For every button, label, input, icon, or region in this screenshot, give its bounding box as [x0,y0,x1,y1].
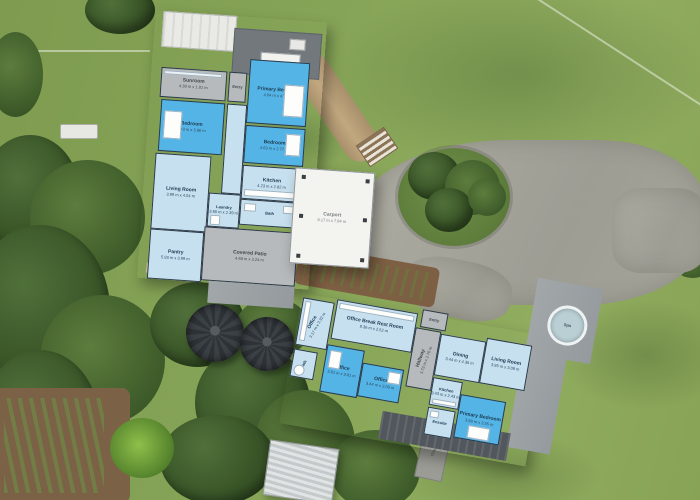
water-tank [186,304,244,362]
carport-post [302,175,306,179]
carport-post [296,254,300,258]
carport-post [299,214,303,218]
furniture [282,85,304,118]
aerial-property-view: Gravel Sunroom 4.38 m x 1.81 m Entry Pri… [0,0,700,500]
room-office-a: Office 3.17 m x 3.32 m [295,297,335,350]
furniture [429,410,439,418]
room-covered-patio: Covered Patio 4.68 m x 3.24 m [201,226,299,286]
room-sunroom: Sunroom 4.38 m x 1.81 m [160,67,228,102]
carport-post [360,258,364,262]
furniture [432,398,457,407]
room-office-c: Office 3.44 m x 2.09 m [357,363,404,404]
room-dining: Dining 3.44 m x 4.36 m [434,334,487,383]
rooftop-unit [289,39,306,51]
furniture [164,70,222,78]
garden-bench [60,124,98,139]
garden-shed [262,439,339,500]
water-tank [240,317,294,371]
furniture [210,215,221,226]
island-bush [468,178,506,216]
carport-post [366,179,370,183]
metal-roof [161,11,237,52]
gravel-driveway [612,188,700,273]
room-primary-bedroom-2: Primary Bedroom 3.88 m x 3.55 m [453,394,506,445]
furniture [387,371,402,385]
room-entry: Entry [227,72,247,103]
furniture [163,110,183,139]
room-kitchen-2: Kitchen 3.43 m x 2.43 m [429,377,463,410]
room-pantry: Pantry 5.83 m x 3.99 m [147,228,204,282]
carport: Carport 8.17 m x 7.94 m [289,167,376,268]
fern-bush [110,418,174,478]
room-living: Living Room 3.99 m x 4.04 m [150,153,211,233]
furniture [285,134,301,157]
tree-canopy [0,32,43,117]
room-ensuite: Ensuite [423,407,455,439]
room-bedroom-left: Bedroom 4.43 m x 3.86 m [158,99,225,155]
spa-label: Spa [563,323,571,329]
carport-post [363,218,367,222]
tree-canopy [85,0,155,34]
room-primary-bedroom: Primary Bedroom 4.04 m x 4.39 m [246,59,310,127]
tree-canopy [160,415,275,500]
room-laundry: Laundry 3.60 m x 2.39 m [207,192,241,228]
garden-rows [4,398,104,493]
furniture [244,189,298,200]
room-bedroom-right: Bedroom 4.63 m x 2.77 m [243,125,306,167]
furniture [244,203,257,212]
spa-tub: Spa [544,302,590,348]
room-bath-2: Bath [289,348,317,380]
room-living-2: Living Room 3.85 m x 3.09 m [479,338,532,391]
room-break-room: Office Break Rest Room 9.36 m x 2.52 m [331,299,419,353]
furniture [466,425,490,442]
island-bush [425,188,473,232]
